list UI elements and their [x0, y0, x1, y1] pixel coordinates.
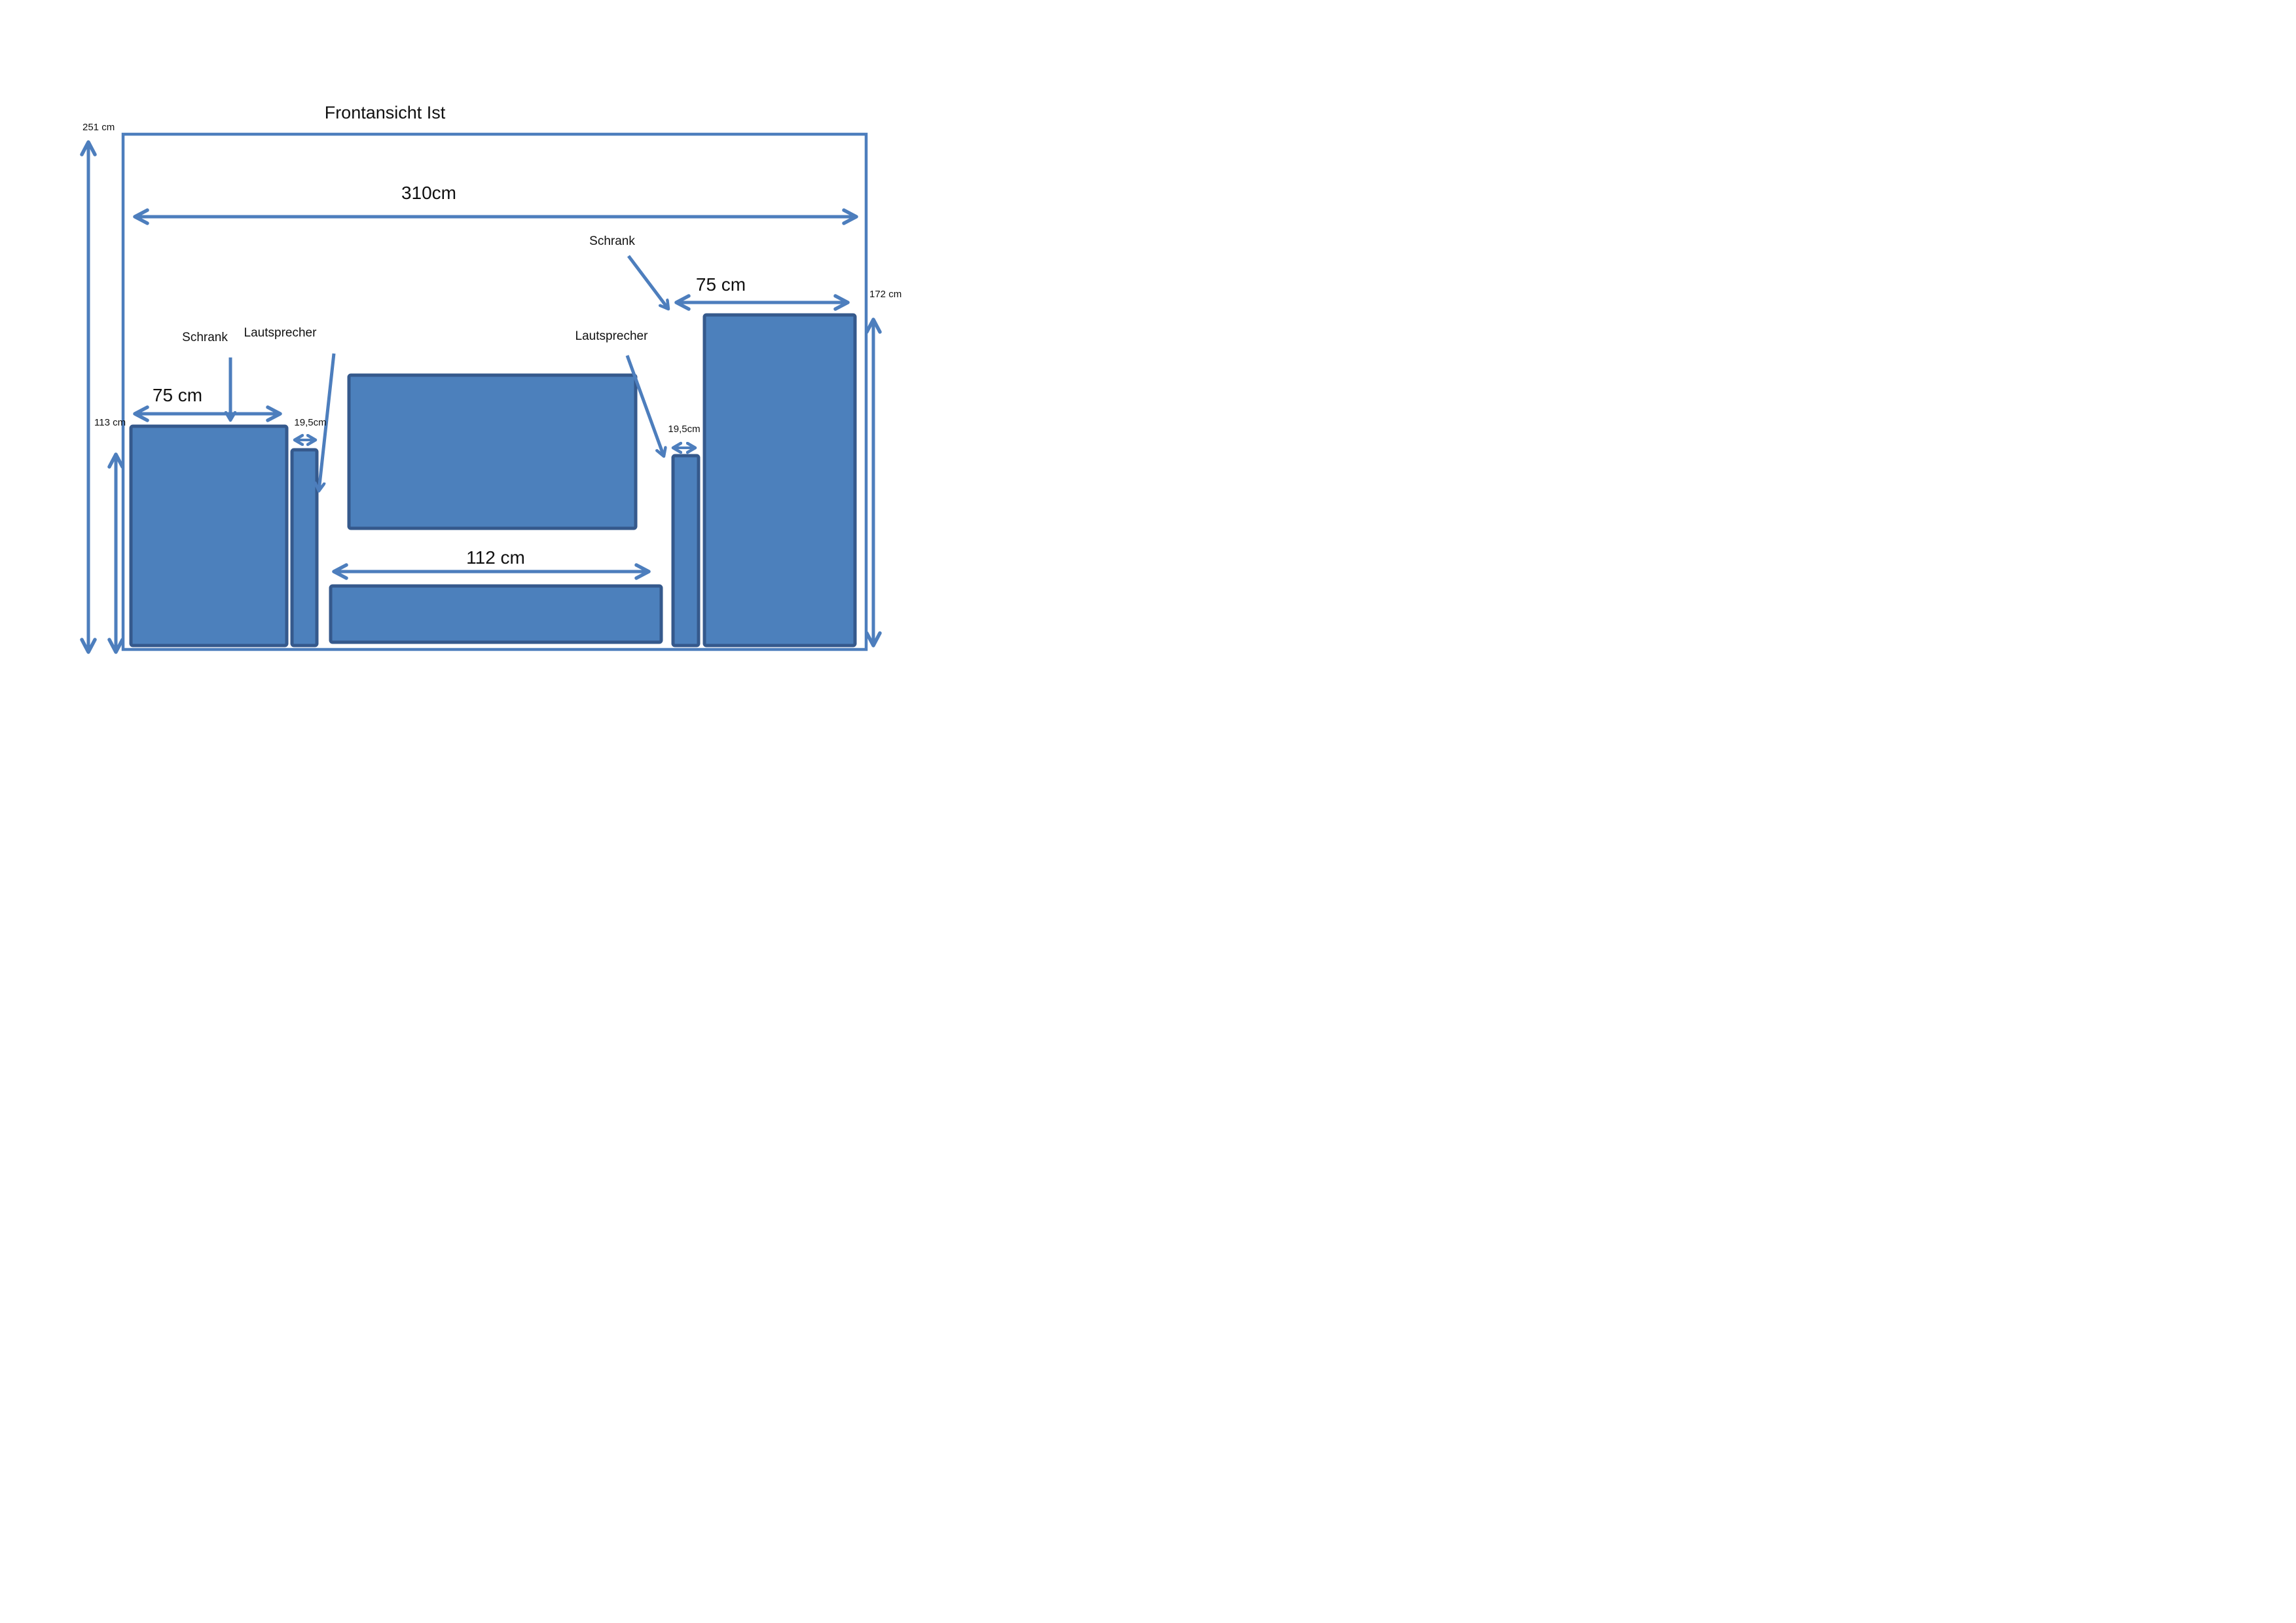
dim-112-label: 112 cm	[466, 547, 525, 568]
dim-172-label: 172 cm	[869, 289, 902, 300]
cabinet-right-rect	[704, 315, 855, 646]
dim-251-label: 251 cm	[82, 122, 115, 133]
speaker-right-rect	[673, 456, 699, 646]
dim-19-5-left-label: 19,5cm	[294, 417, 326, 428]
speaker-left-rect	[292, 450, 317, 646]
diagram-page: Frontansicht Ist 251 cm 310cm 113 cm 172…	[0, 0, 1013, 716]
cabinet-left-label: Schrank	[182, 331, 228, 344]
cabinet-right-label: Schrank	[589, 234, 635, 248]
dim-310-label: 310cm	[401, 183, 456, 203]
lowboard-rect	[331, 586, 661, 642]
dim-113-label: 113 cm	[94, 417, 126, 428]
cabinet-left-rect	[131, 426, 287, 646]
cabinet-right-pointer-arrow	[629, 256, 668, 309]
dim-75-right-label: 75 cm	[696, 274, 746, 295]
dim-19-5-right-label: 19,5cm	[668, 424, 700, 435]
speaker-right-label: Lautsprecher	[575, 329, 649, 343]
speaker-left-label: Lautsprecher	[244, 326, 318, 340]
page-title: Frontansicht Ist	[325, 103, 446, 122]
tv-rect	[349, 375, 636, 528]
front-view-diagram: Frontansicht Ist 251 cm 310cm 113 cm 172…	[0, 0, 1013, 716]
dim-75-left-label: 75 cm	[153, 385, 202, 405]
